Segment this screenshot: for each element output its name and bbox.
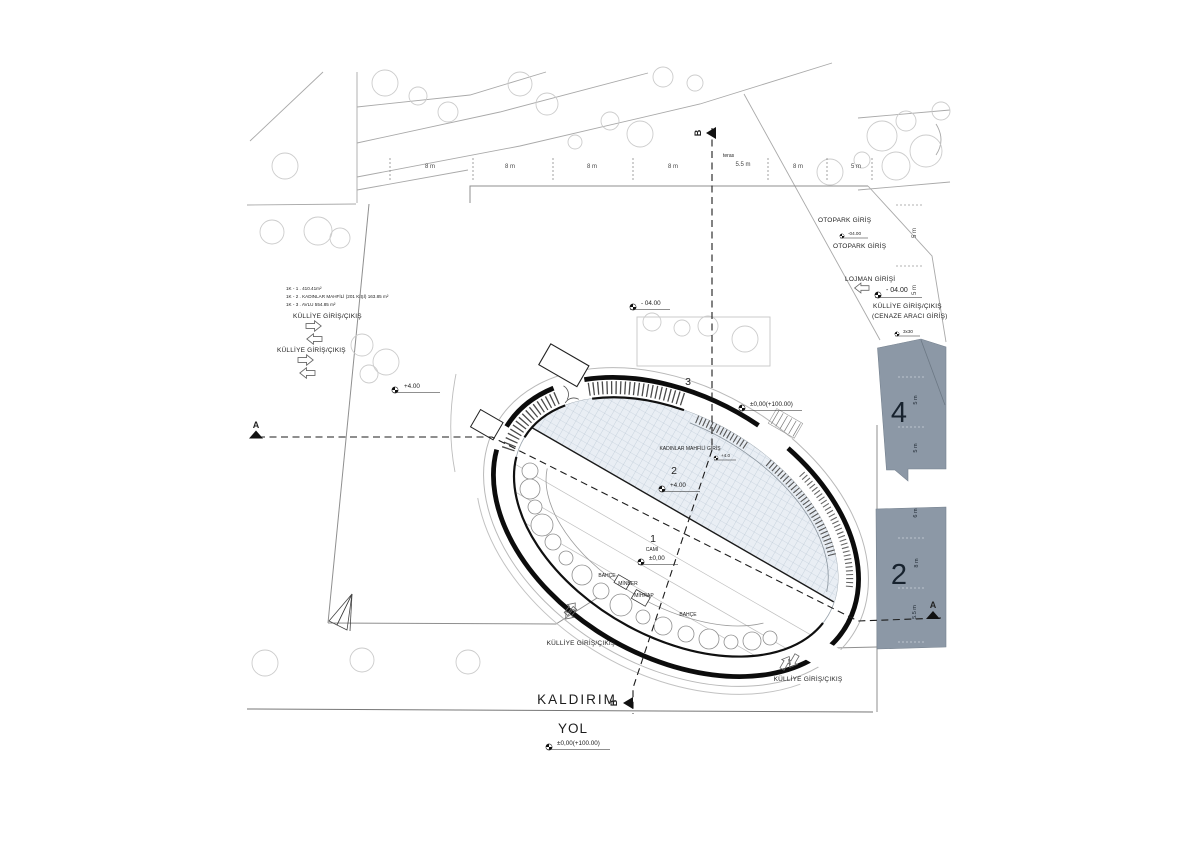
building-block-4: 4 5 m 5 m (878, 339, 947, 481)
elevation-marker-cami: ±0,00 (638, 555, 678, 565)
dim-label-right: 5 m (912, 228, 918, 238)
bahce-label-1: BAHÇE (598, 573, 616, 579)
elevation-text: ±0,00 (649, 555, 665, 562)
elevation-text: 3x30 (903, 329, 913, 334)
dim-label-right: 5 m (912, 285, 918, 295)
block-2-number: 2 (891, 559, 907, 591)
minber-label: MİNBER (618, 580, 638, 587)
elevation-text: -04.00 (848, 231, 861, 236)
legend-line-1: 1K - 1 . 410.41m² (286, 286, 322, 291)
cenaze-label: (CENAZE ARACI GİRİŞ) (872, 311, 948, 320)
teras-label: teras (723, 153, 735, 159)
kadinlar-entrance-label: KADINLAR MAHFİLİ GİRİŞ (659, 445, 721, 452)
dim-label-block: 5 m (913, 443, 919, 453)
lojman-label: LOJMAN GİRİŞİ (845, 274, 895, 283)
dim-label-block: 5.5 m (912, 605, 918, 619)
zone-3-label: 3 (685, 376, 691, 388)
yol-label: YOL (558, 721, 588, 736)
block-4-number: 4 (891, 397, 907, 429)
elevation-text: +4.00 (404, 383, 420, 390)
right-dimension-ticks (896, 205, 924, 266)
elevation-text: - 04.00 (886, 287, 908, 294)
dim-label: 5 m (851, 164, 861, 170)
kulliye-bottom-right-label: KÜLLİYE GİRİŞ/ÇIKIŞ (774, 674, 843, 683)
dim-label: 8 m (587, 164, 597, 170)
elevation-text: ±0,00(+100.00) (750, 401, 793, 408)
dim-label: 8 m (793, 164, 803, 170)
north-arrow-fold (329, 594, 352, 631)
kulliye-right-label: KÜLLİYE GİRİŞ/ÇIKIŞ (873, 301, 942, 310)
kulliye-bottom-left-label: KÜLLİYE GİRİŞ/ÇIKIŞ (547, 638, 616, 647)
zone-2-label: 2 (671, 465, 677, 477)
otopark-label-1: OTOPARK GİRİŞ (818, 215, 872, 224)
kulliye-entrance-label-2: KÜLLİYE GİRİŞ/ÇIKIŞ (277, 345, 346, 354)
elevation-text: ±0,00(+100.00) (557, 740, 600, 747)
kulliye-entrance-label-1: KÜLLİYE GİRİŞ/ÇIKIŞ (293, 311, 362, 320)
section-a-letter: A (253, 420, 260, 430)
entry-arrows-left-1 (306, 321, 322, 344)
legend-line-2: 1K - 2 . KADINLAR MAHFİLİ (201 KİŞİ) 163… (286, 293, 389, 299)
outer-ring-wall (440, 316, 911, 738)
entry-arrows-left-2 (298, 355, 315, 378)
building-block-2: 2 6 m 8 m 5.5 m (876, 507, 946, 649)
dim-label: 5.5 m (735, 162, 750, 168)
site-plan-drawing: 8 m 8 m 8 m 8 m 5.5 m 8 m 5 m teras 5 m … (0, 0, 1200, 848)
kaldirim-label: KALDIRIM (537, 692, 617, 707)
cami-label: CAMİ (646, 546, 659, 553)
area-legend: 1K - 1 . 410.41m² 1K - 2 . KADINLAR MAHF… (286, 286, 389, 307)
kadinlar-entrance-steps (756, 406, 802, 452)
mosque-ellipse-plan (405, 280, 933, 759)
elevation-marker-steps: 3x30 (895, 329, 920, 336)
legend-line-3: 1K - 3 . AVLU 554.85 m² (286, 302, 336, 307)
dim-label: 8 m (425, 164, 435, 170)
elevation-marker-minus4-top: - 04.00 (630, 300, 670, 310)
elevation-marker-zero-top: ±0,00(+100.00) (739, 401, 802, 411)
otopark-label-2: OTOPARK GİRİŞ (833, 241, 887, 250)
zone-1-label: 1 (650, 533, 656, 545)
elevation-marker-road: ±0,00(+100.00) (546, 740, 610, 750)
bahce-label-2: BAHÇE (679, 612, 697, 618)
site-plan-canvas: 8 m 8 m 8 m 8 m 5.5 m 8 m 5 m teras 5 m … (0, 0, 1200, 848)
dim-label-block: 8 m (914, 558, 920, 568)
elevation-text: +4.0 (721, 453, 731, 458)
dim-label-block: 6 m (913, 508, 919, 518)
elevation-marker-plus4-left: +4.00 (392, 383, 440, 393)
dim-label: 8 m (668, 164, 678, 170)
dim-label-block: 5 m (913, 395, 919, 405)
left-entrance-porch (471, 410, 504, 440)
dim-label: 8 m (505, 164, 515, 170)
outer-offset-ellipse (427, 302, 926, 751)
lojman-entry-arrow (855, 283, 869, 293)
mihrap-label: MİHRAP (634, 592, 654, 599)
section-marker-a-left: A (249, 420, 263, 439)
section-b-letter: B (693, 129, 703, 136)
top-dimension-labels: 8 m 8 m 8 m 8 m 5.5 m 8 m 5 m (425, 162, 861, 170)
elevation-marker-minus4-small: -04.00 (840, 231, 868, 238)
elevation-text: - 04.00 (641, 300, 661, 307)
southeast-entrance-gap (803, 636, 844, 675)
elevation-text: +4.00 (670, 482, 686, 489)
section-a-letter: A (930, 600, 937, 610)
